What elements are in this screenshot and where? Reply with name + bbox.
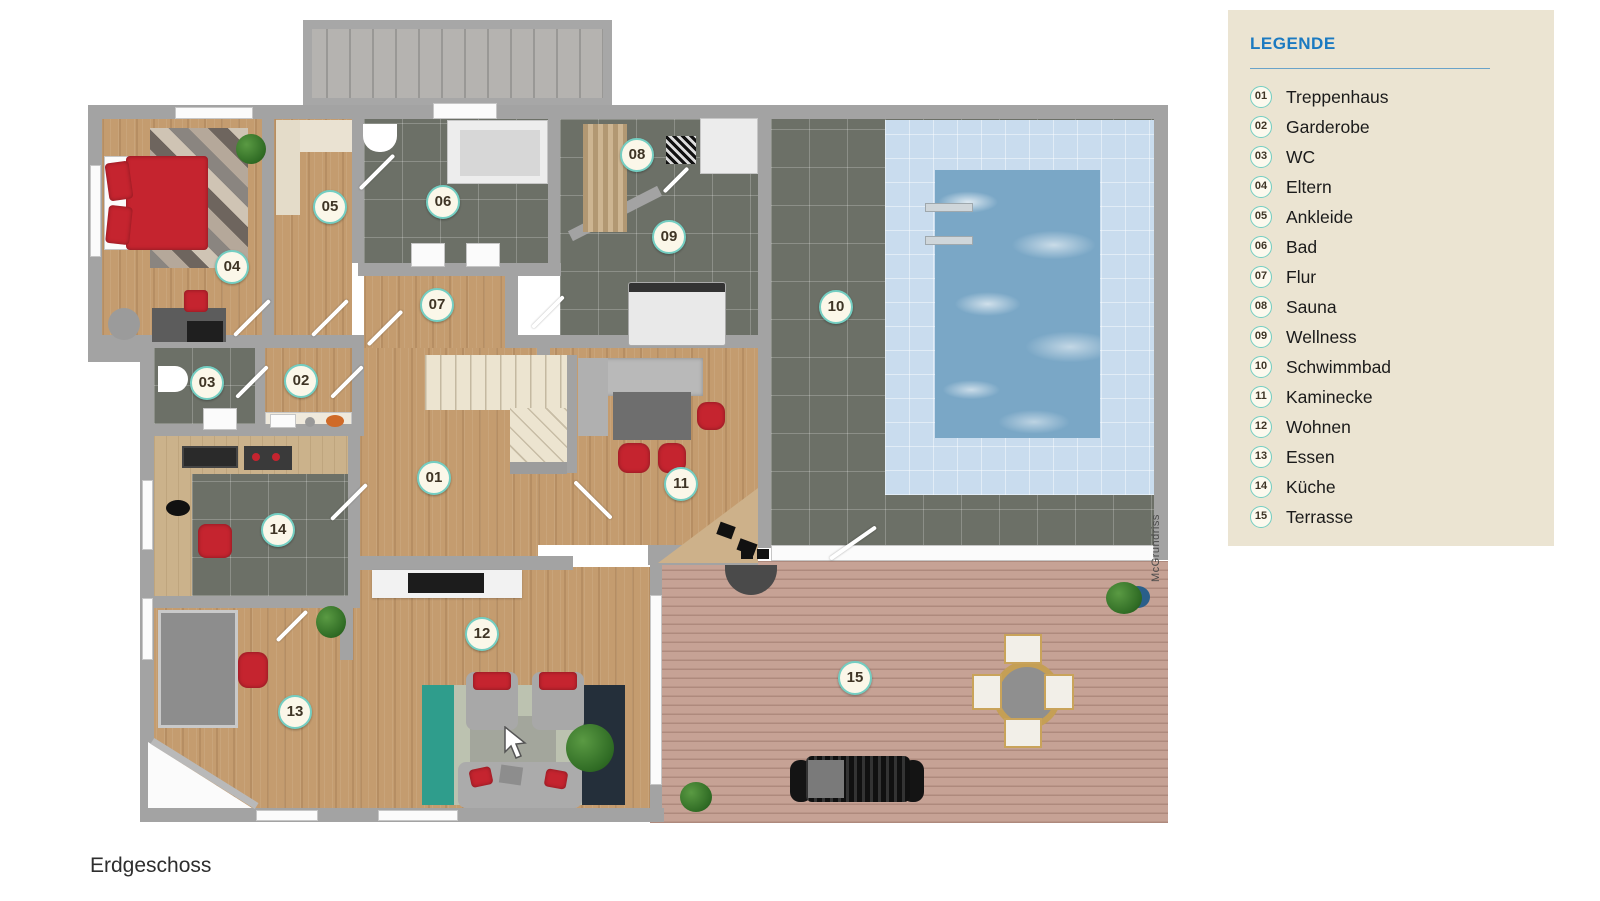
chair: [238, 652, 268, 688]
terrace-chair: [1004, 634, 1042, 664]
legend-item-label: Garderobe: [1286, 117, 1370, 138]
sliding-door-terrace: [650, 595, 662, 785]
legend-item-label: Essen: [1286, 447, 1335, 468]
legend-item-number: 12: [1250, 416, 1272, 438]
legend-item-number: 10: [1250, 356, 1272, 378]
legend-item-number: 15: [1250, 506, 1272, 528]
legend-item-number: 11: [1250, 386, 1272, 408]
window: [378, 810, 458, 821]
wall: [255, 348, 265, 424]
legend-item: 07Flur: [1250, 266, 1554, 288]
shelf-item: [270, 414, 296, 428]
legend-item-label: Ankleide: [1286, 207, 1353, 228]
room-badge: 11: [664, 467, 698, 501]
wall: [567, 355, 577, 473]
terrace-chair: [1044, 674, 1074, 710]
legend-title: LEGENDE: [1250, 34, 1554, 54]
sink: [466, 243, 500, 267]
legend-item: 04Eltern: [1250, 176, 1554, 198]
cooktop: [182, 446, 238, 468]
grill-side-shelf: [808, 760, 844, 798]
sofa-pillow: [499, 765, 523, 786]
room-badge: 15: [838, 661, 872, 695]
pool-ladder: [925, 236, 973, 245]
wall: [102, 335, 364, 348]
wall: [650, 565, 662, 595]
shelf-item: [305, 417, 315, 427]
window: [175, 107, 253, 119]
legend-item: 13Essen: [1250, 446, 1554, 468]
wall: [353, 556, 573, 570]
wall: [148, 424, 360, 436]
legend-item-label: Kaminecke: [1286, 387, 1373, 408]
sliding-door-pool: [771, 545, 1154, 561]
room-badge: 02: [284, 364, 318, 398]
legend-item-number: 03: [1250, 146, 1272, 168]
legend-item-number: 06: [1250, 236, 1272, 258]
pool-ladder: [925, 203, 973, 212]
tv: [408, 573, 484, 593]
plant: [680, 782, 712, 812]
exterior-stairs: [303, 20, 612, 107]
legend-item-number: 13: [1250, 446, 1272, 468]
legend-item-number: 02: [1250, 116, 1272, 138]
dining-table: [613, 392, 691, 440]
room-badge: 10: [819, 290, 853, 324]
room-badge: 04: [215, 250, 249, 284]
plant: [236, 134, 266, 164]
legend-item-label: Küche: [1286, 477, 1336, 498]
sink: [203, 408, 237, 430]
room-badge: 14: [261, 513, 295, 547]
legend-item: 08Sauna: [1250, 296, 1554, 318]
staircase-winder: [510, 408, 567, 465]
wall: [650, 785, 662, 808]
bistro-item: [757, 549, 769, 559]
room-badge: 07: [420, 288, 454, 322]
legend-item-label: Bad: [1286, 237, 1317, 258]
wall: [758, 105, 771, 548]
legend-item-number: 01: [1250, 86, 1272, 108]
legend-item: 15Terrasse: [1250, 506, 1554, 528]
sauna-bench: [583, 124, 627, 232]
room-badge: 05: [313, 190, 347, 224]
window: [142, 480, 153, 550]
room-badge: 12: [465, 617, 499, 651]
legend-item: 14Küche: [1250, 476, 1554, 498]
sink: [411, 243, 445, 267]
floor-label: Erdgeschoss: [90, 854, 211, 878]
room-badge: 06: [426, 185, 460, 219]
legend-item-number: 14: [1250, 476, 1272, 498]
room-badge: 09: [652, 220, 686, 254]
legend-item-label: Wohnen: [1286, 417, 1351, 438]
stove-knob: [252, 453, 260, 461]
rug-stripe: [422, 685, 454, 805]
window: [256, 810, 318, 821]
shower-tray: [460, 130, 540, 176]
terrace-chair: [1004, 718, 1042, 748]
bistro-item: [741, 549, 753, 559]
legend-item-number: 04: [1250, 176, 1272, 198]
stove-knob: [272, 453, 280, 461]
wall: [352, 348, 364, 436]
legend-item-label: Schwimmbad: [1286, 357, 1391, 378]
legend-item-label: Terrasse: [1286, 507, 1353, 528]
legend-item-number: 07: [1250, 266, 1272, 288]
lounger: [628, 282, 726, 346]
wall: [358, 263, 561, 276]
room-badge: 08: [620, 138, 654, 172]
legend-item-label: Flur: [1286, 267, 1316, 288]
chair: [184, 290, 208, 312]
bed-pillow: [105, 205, 133, 245]
room-badge: 01: [417, 461, 451, 495]
legend-divider: [1250, 68, 1490, 69]
chair: [697, 402, 725, 430]
room-badge: 03: [190, 366, 224, 400]
legend-item: 11Kaminecke: [1250, 386, 1554, 408]
chair: [198, 524, 232, 558]
staircase-landing-edge: [510, 462, 567, 474]
watermark: McGrundriss: [1150, 487, 1162, 582]
legend-item: 01Treppenhaus: [1250, 86, 1554, 108]
armchair-cushion: [539, 672, 577, 690]
bed: [126, 156, 208, 250]
entry-door: [433, 103, 497, 119]
wall: [148, 596, 348, 608]
legend-item-label: Eltern: [1286, 177, 1332, 198]
legend-panel: LEGENDE 01Treppenhaus02Garderobe03WC04El…: [1228, 10, 1554, 546]
window: [90, 165, 101, 257]
legend-item-number: 09: [1250, 326, 1272, 348]
mouse-cursor-icon: [503, 726, 529, 760]
wall: [352, 118, 364, 263]
kitchen-counter: [154, 474, 192, 596]
bench-sofa: [578, 358, 608, 436]
kitchen-sink: [166, 500, 190, 516]
legend-item-number: 08: [1250, 296, 1272, 318]
shelf-item: [326, 415, 344, 427]
pouf: [108, 308, 140, 340]
armchair-cushion: [473, 672, 511, 690]
sideboard: [158, 610, 238, 728]
legend-item-label: Sauna: [1286, 297, 1337, 318]
sauna-heater: [666, 136, 696, 164]
legend-item: 10Schwimmbad: [1250, 356, 1554, 378]
legend-item: 05Ankleide: [1250, 206, 1554, 228]
shower: [700, 118, 758, 174]
sofa-pillow: [544, 768, 569, 790]
closet: [276, 120, 300, 215]
chair: [618, 443, 650, 473]
legend-list: 01Treppenhaus02Garderobe03WC04Eltern05An…: [1250, 86, 1554, 528]
legend-item-number: 05: [1250, 206, 1272, 228]
plant: [316, 606, 346, 638]
staircase: [425, 355, 567, 410]
toilet: [158, 366, 188, 392]
legend-item: 09Wellness: [1250, 326, 1554, 348]
room-badge: 13: [278, 695, 312, 729]
legend-item-label: Wellness: [1286, 327, 1357, 348]
legend-item: 02Garderobe: [1250, 116, 1554, 138]
terrace-chair: [972, 674, 1002, 710]
bed-pillow: [104, 161, 133, 202]
legend-item-label: WC: [1286, 147, 1315, 168]
wall: [505, 276, 518, 348]
legend-item: 03WC: [1250, 146, 1554, 168]
legend-item: 12Wohnen: [1250, 416, 1554, 438]
plant: [1106, 582, 1142, 614]
plant: [566, 724, 614, 772]
wall: [548, 118, 560, 263]
legend-item-label: Treppenhaus: [1286, 87, 1388, 108]
window: [142, 598, 153, 660]
desk-chair: [187, 321, 223, 342]
legend-item: 06Bad: [1250, 236, 1554, 258]
wall: [348, 424, 360, 608]
